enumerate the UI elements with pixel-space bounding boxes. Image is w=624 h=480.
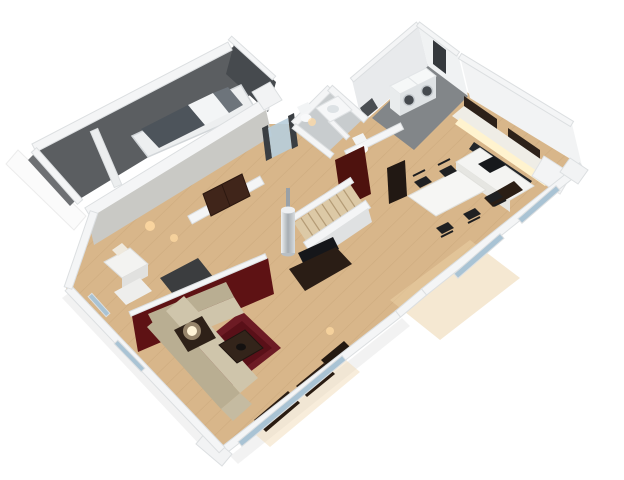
chimney-flue — [281, 210, 295, 253]
coffee-table-bowl — [236, 344, 246, 351]
hall-downlight-1 — [145, 221, 155, 231]
hall-downlight-2 — [170, 234, 178, 242]
dryer-door — [404, 95, 415, 106]
bath-sink-basin — [327, 105, 339, 113]
bath-light — [308, 118, 316, 126]
stair-downlight — [326, 327, 334, 335]
table-lamp — [187, 326, 197, 336]
chimney-top — [281, 207, 295, 214]
washer-door — [422, 86, 433, 97]
shape-root — [6, 22, 588, 466]
floor-plan-image — [0, 0, 624, 480]
floor-plan-render — [0, 0, 624, 480]
